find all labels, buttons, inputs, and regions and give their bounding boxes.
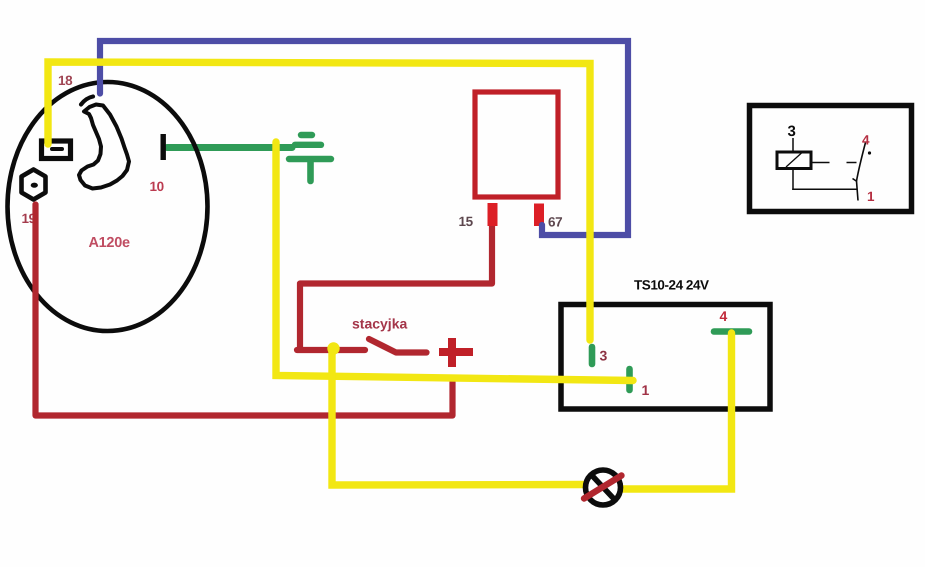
svg-text:TS10-24 24V: TS10-24 24V <box>634 278 709 293</box>
svg-text:15: 15 <box>459 214 474 229</box>
svg-text:3: 3 <box>788 123 796 140</box>
svg-text:18: 18 <box>58 73 73 88</box>
svg-text:10: 10 <box>150 179 164 194</box>
svg-text:stacyjka: stacyjka <box>352 316 407 332</box>
svg-text:3: 3 <box>600 348 608 364</box>
svg-text:A120e: A120e <box>89 235 130 251</box>
svg-text:1: 1 <box>642 382 650 398</box>
svg-text:67: 67 <box>548 215 562 230</box>
svg-text:4: 4 <box>862 133 870 148</box>
svg-text:4: 4 <box>720 308 728 324</box>
svg-text:1: 1 <box>867 189 875 204</box>
